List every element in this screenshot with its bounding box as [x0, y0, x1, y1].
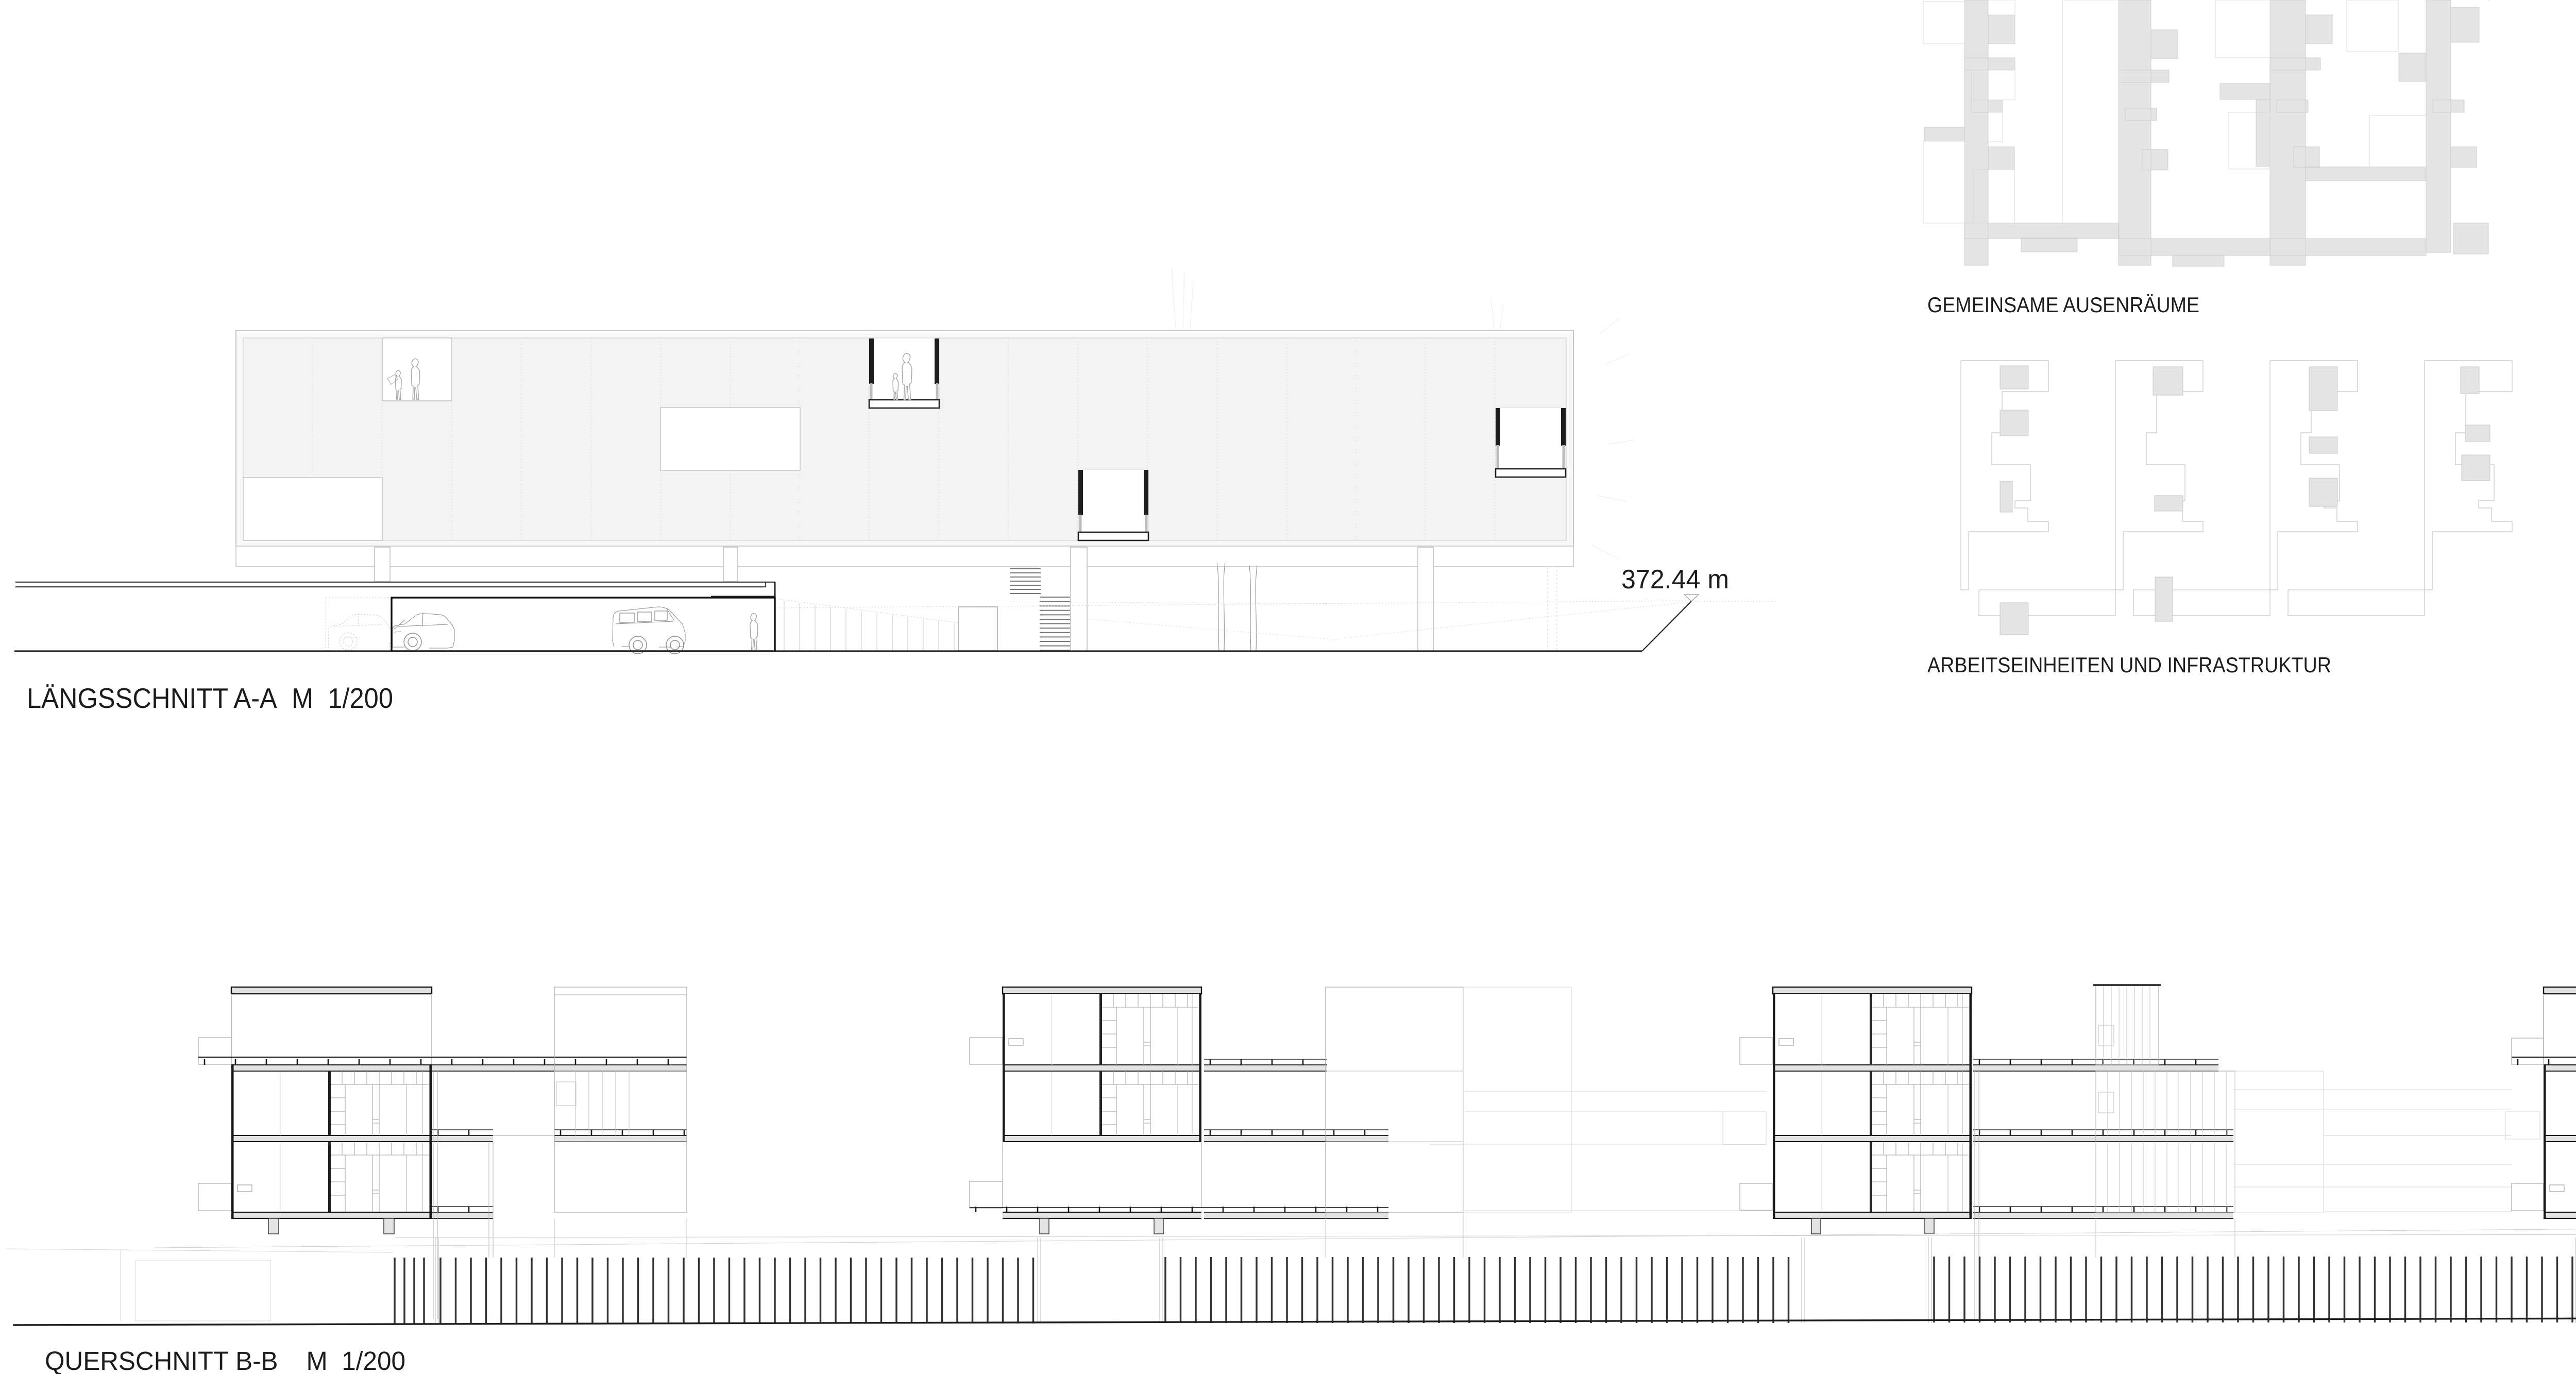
svg-text:GEMEINSAME AUSENRÄUME: GEMEINSAME AUSENRÄUME — [1927, 293, 2199, 317]
svg-text:372.44 m: 372.44 m — [1621, 565, 1729, 595]
svg-text:LÄNGSSCHNITT A-A M 1/200: LÄNGSSCHNITT A-A M 1/200 — [27, 682, 393, 714]
svg-text:QUERSCHNITT B-B M 1/200: QUERSCHNITT B-B M 1/200 — [45, 1346, 405, 1374]
svg-text:ARBEITSEINHEITEN UND INFRASTRU: ARBEITSEINHEITEN UND INFRASTRUKTUR — [1927, 653, 2331, 677]
